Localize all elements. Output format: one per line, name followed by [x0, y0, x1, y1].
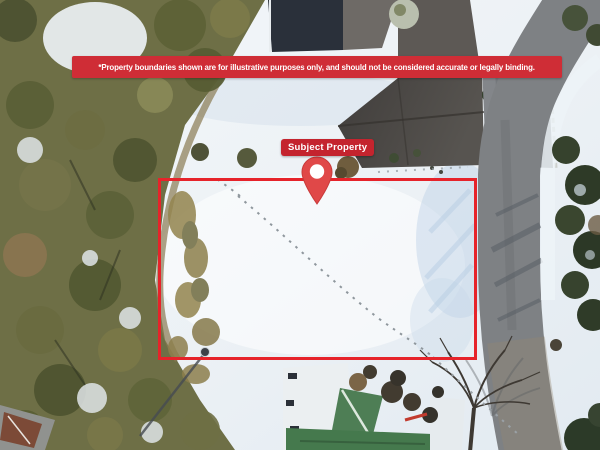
pin-body	[302, 157, 332, 204]
aerial-photo: *Property boundaries shown are for illus…	[0, 0, 600, 450]
subject-property-label: Subject Property	[281, 139, 374, 156]
disclaimer-banner: *Property boundaries shown are for illus…	[72, 56, 562, 78]
disclaimer-text: *Property boundaries shown are for illus…	[99, 62, 535, 72]
pin-inner-circle	[310, 164, 324, 178]
location-pin-icon	[301, 156, 333, 206]
subject-property-label-text: Subject Property	[288, 142, 367, 153]
